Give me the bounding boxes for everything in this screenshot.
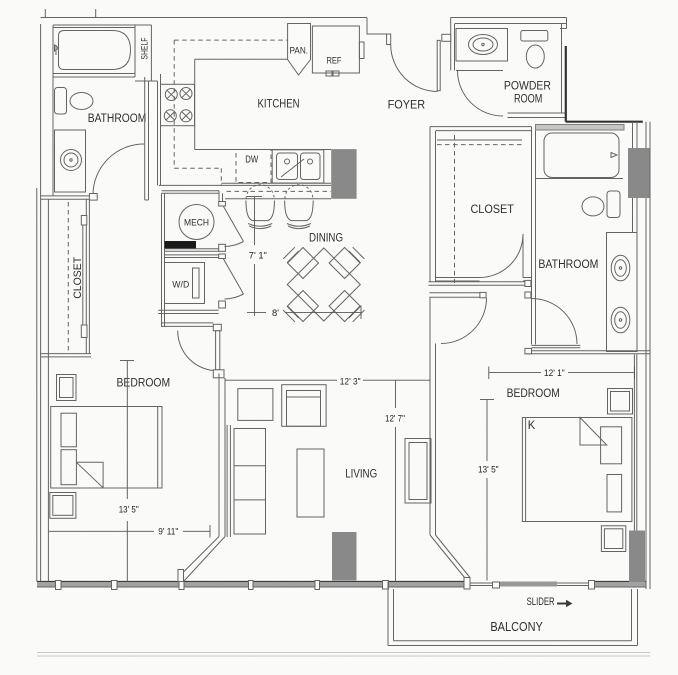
svg-text:BATHROOM: BATHROOM [88, 113, 147, 125]
svg-text:8': 8' [272, 308, 279, 319]
svg-text:CLOSET: CLOSET [72, 257, 84, 299]
svg-text:W/D: W/D [172, 280, 189, 291]
svg-text:ROOM: ROOM [514, 94, 543, 106]
svg-text:REF: REF [327, 56, 342, 66]
svg-text:PAN.: PAN. [290, 46, 309, 57]
svg-text:MECH: MECH [184, 218, 209, 229]
svg-text:DINING: DINING [309, 233, 343, 245]
svg-text:BALCONY: BALCONY [490, 619, 543, 634]
svg-text:DW: DW [245, 155, 258, 166]
svg-text:12' 1": 12' 1" [544, 368, 565, 379]
svg-text:13' 5": 13' 5" [478, 465, 499, 476]
svg-text:CLOSET: CLOSET [470, 204, 514, 216]
svg-text:KITCHEN: KITCHEN [258, 99, 300, 111]
svg-text:9' 11": 9' 11" [158, 527, 178, 538]
svg-text:12' 3": 12' 3" [340, 376, 361, 387]
svg-text:BATHROOM: BATHROOM [538, 259, 598, 271]
svg-text:BEDROOM: BEDROOM [117, 378, 171, 390]
svg-text:13' 5": 13' 5" [119, 505, 139, 516]
svg-text:POWDER: POWDER [504, 81, 551, 93]
svg-text:SLIDER: SLIDER [527, 596, 555, 608]
svg-text:BEDROOM: BEDROOM [507, 388, 560, 400]
svg-text:7' 1": 7' 1" [249, 251, 267, 262]
svg-text:K: K [528, 418, 536, 432]
svg-text:FOYER: FOYER [388, 100, 426, 112]
svg-text:12' 7": 12' 7" [385, 414, 405, 425]
svg-text:LIVING: LIVING [345, 469, 377, 481]
svg-text:SHELF: SHELF [139, 37, 149, 59]
